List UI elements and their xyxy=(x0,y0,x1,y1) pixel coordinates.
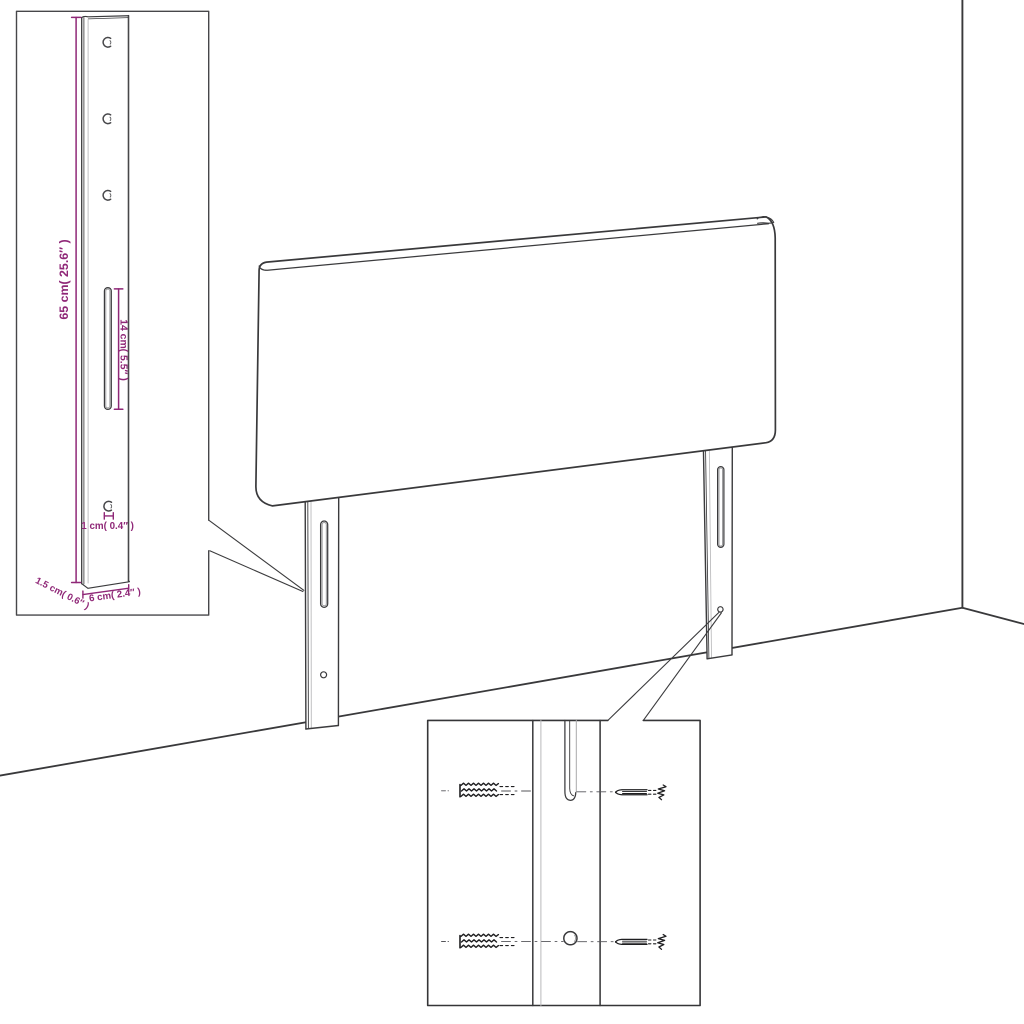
svg-text:65 cm( 25.6″ ): 65 cm( 25.6″ ) xyxy=(57,239,71,319)
svg-text:1 cm( 0.4″ ): 1 cm( 0.4″ ) xyxy=(81,521,134,532)
svg-text:14 cm( 5.5″ ): 14 cm( 5.5″ ) xyxy=(118,319,129,381)
svg-text:6 cm( 2.4″ ): 6 cm( 2.4″ ) xyxy=(88,586,141,604)
